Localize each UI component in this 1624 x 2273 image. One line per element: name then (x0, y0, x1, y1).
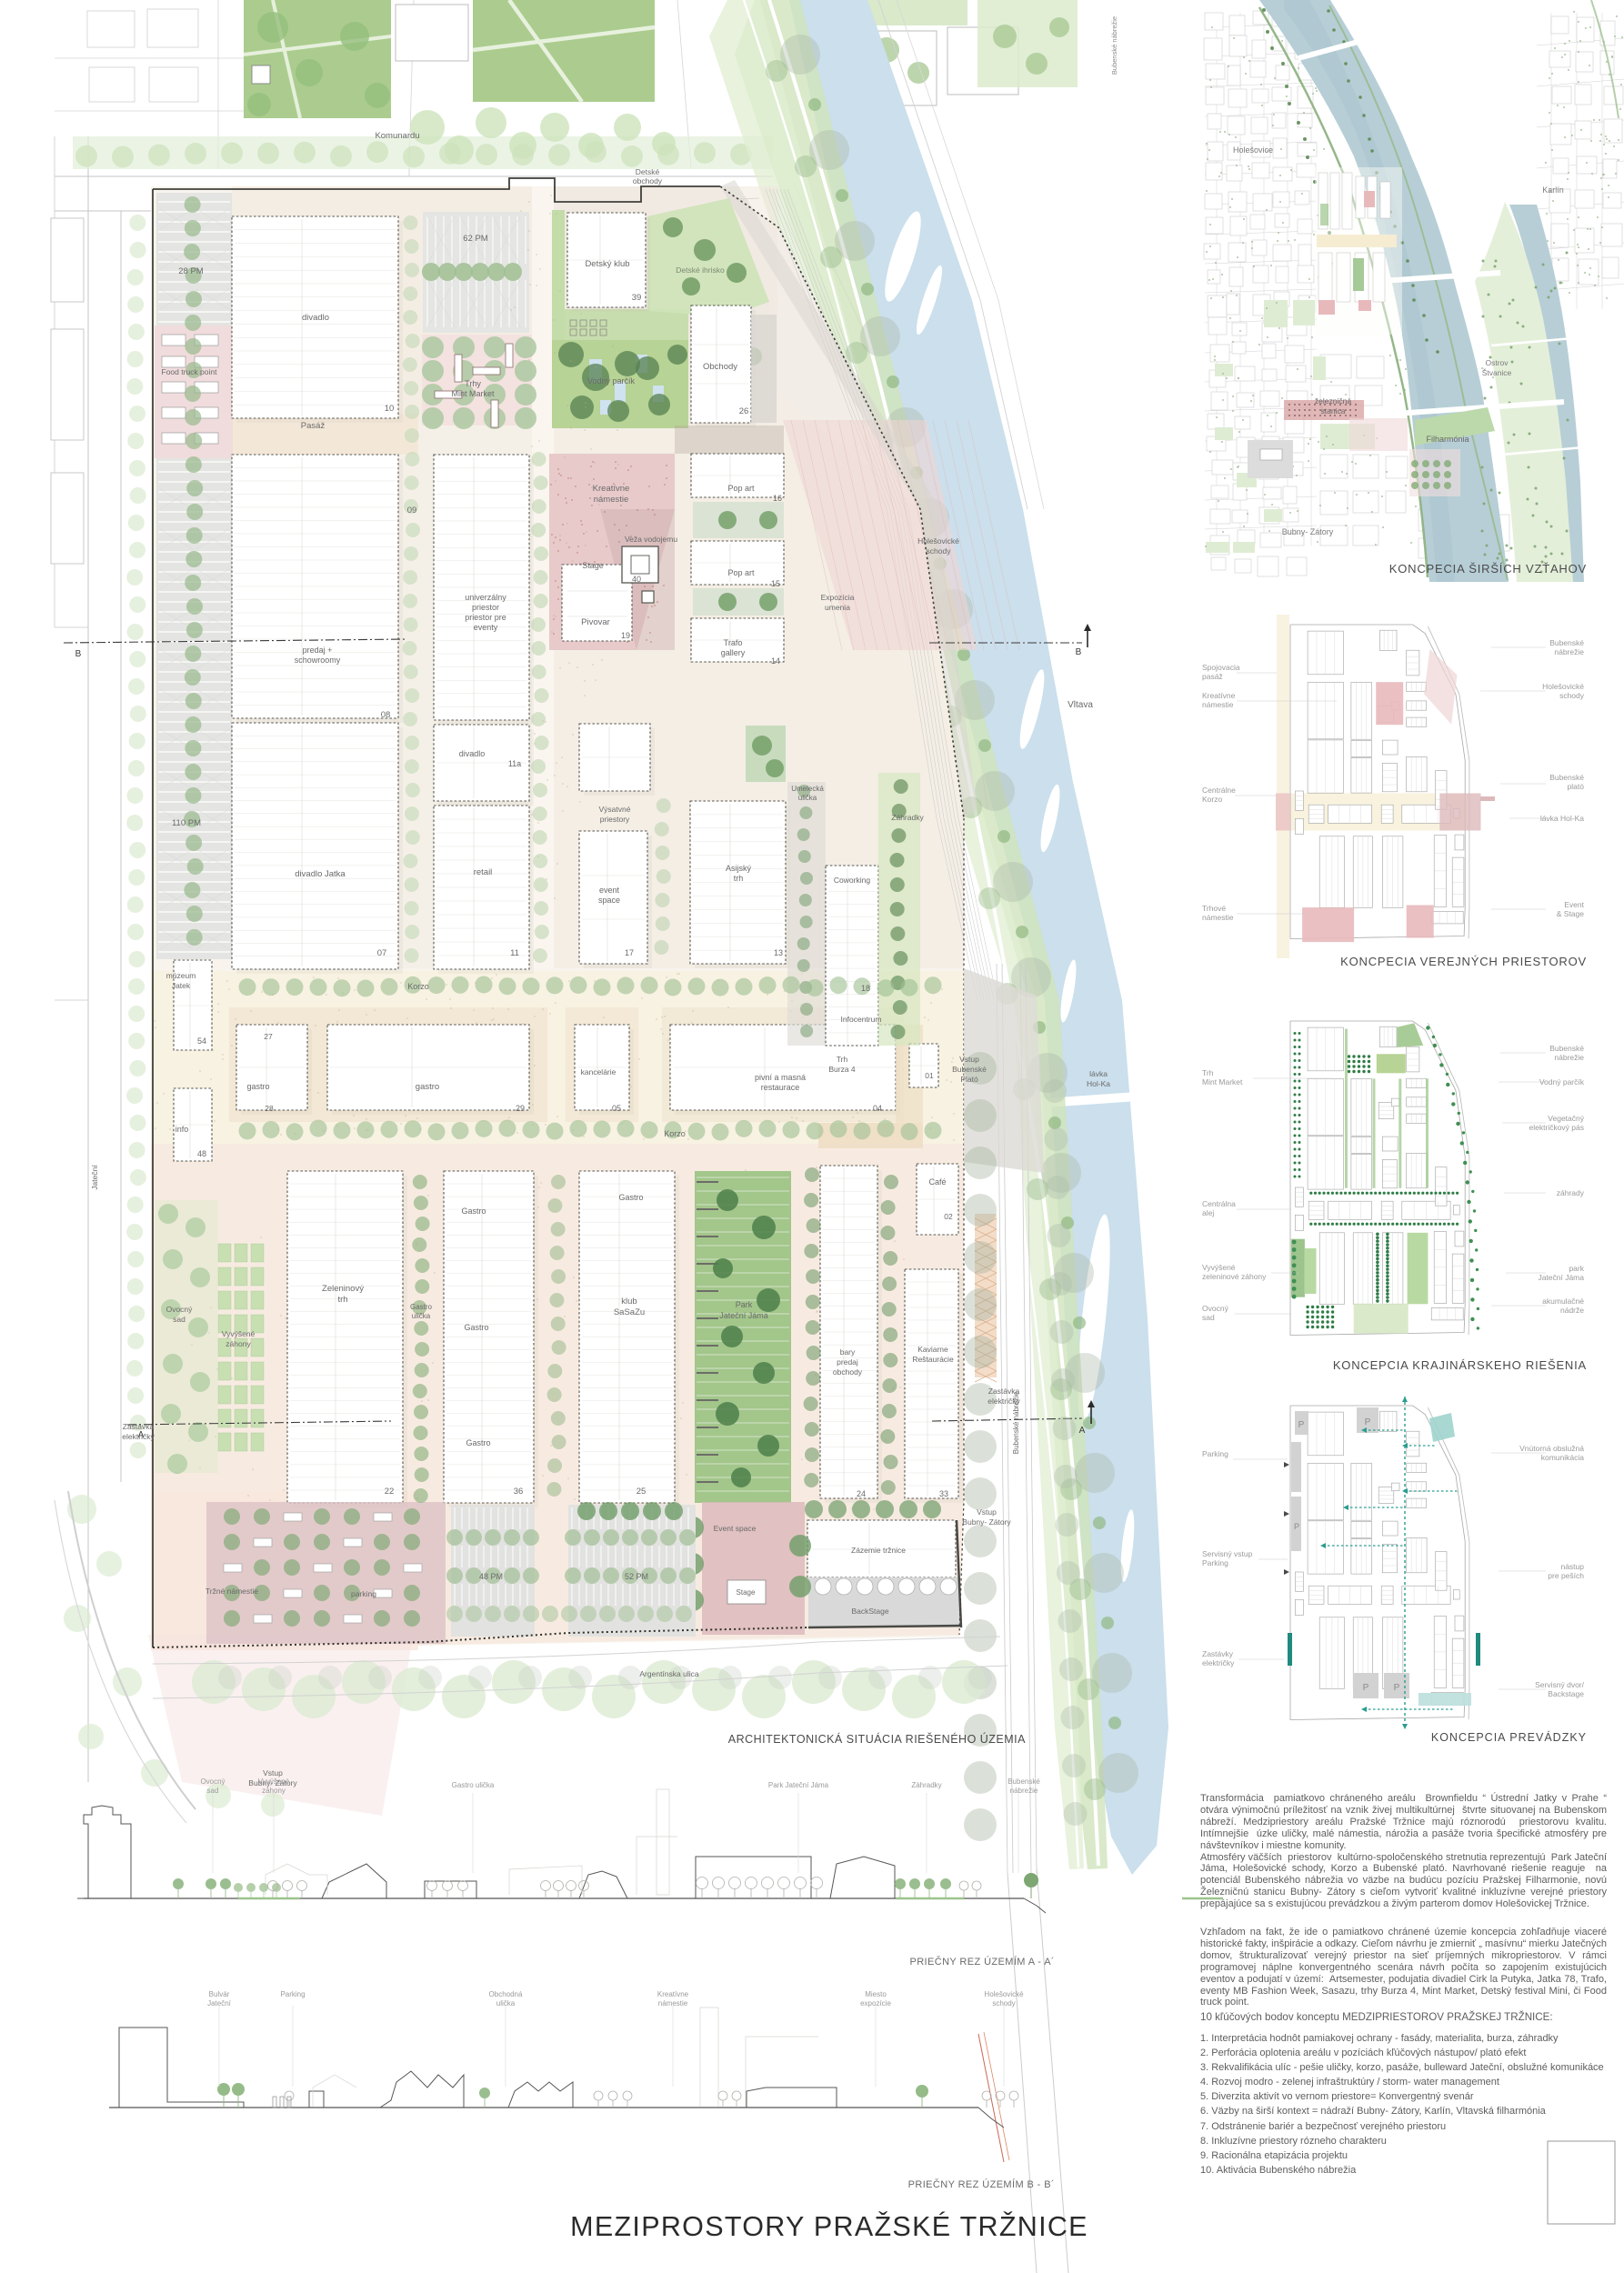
svg-text:Event: Event (1564, 900, 1584, 909)
svg-text:Korzo: Korzo (1202, 795, 1222, 804)
svg-text:02: 02 (944, 1212, 953, 1221)
svg-text:Parking: Parking (1202, 1558, 1228, 1567)
svg-text:07: 07 (377, 948, 387, 958)
svg-text:10: 10 (385, 404, 395, 414)
svg-text:priestor pre: priestor pre (465, 613, 506, 622)
svg-text:plató: plató (1568, 782, 1585, 791)
svg-text:B: B (1076, 647, 1082, 657)
svg-text:univerzálny: univerzálny (465, 593, 506, 602)
svg-text:Jateční Jáma: Jateční Jáma (1538, 1273, 1584, 1282)
svg-text:Vstup: Vstup (977, 1507, 997, 1517)
svg-text:Argentínska ulica: Argentínska ulica (639, 1669, 698, 1678)
svg-text:P: P (1365, 1417, 1371, 1427)
svg-text:nábrežie: nábrežie (1554, 647, 1584, 656)
svg-text:Bubenské: Bubenské (1007, 1777, 1040, 1786)
svg-text:Vyvýšené: Vyvýšené (1202, 1263, 1236, 1272)
svg-text:stanica: stanica (1321, 406, 1346, 416)
svg-text:KONCEPCIA KRAJINÁRSKEHO RIEŠEN: KONCEPCIA KRAJINÁRSKEHO RIEŠENIA (1333, 1358, 1587, 1372)
svg-text:Komunardu: Komunardu (375, 131, 419, 141)
svg-text:Stage: Stage (737, 1588, 756, 1597)
svg-text:11: 11 (510, 948, 519, 958)
svg-text:SaSaZu: SaSaZu (614, 1307, 645, 1317)
svg-text:Ovocný: Ovocný (1202, 1304, 1229, 1313)
svg-text:Vyvýšené: Vyvýšené (258, 1777, 290, 1786)
svg-text:námestie: námestie (594, 495, 629, 505)
svg-text:Stage: Stage (582, 561, 604, 570)
svg-text:Centrálne: Centrálne (1202, 786, 1236, 795)
svg-text:Trhy: Trhy (465, 379, 481, 388)
svg-text:ulička: ulička (412, 1312, 431, 1320)
svg-text:Pop art: Pop art (727, 484, 755, 493)
svg-text:25: 25 (637, 1487, 647, 1497)
svg-text:Kreatívne: Kreatívne (1202, 691, 1236, 700)
svg-text:obchody: obchody (833, 1367, 863, 1377)
svg-text:P: P (1363, 1683, 1369, 1693)
svg-text:Holešovické: Holešovické (1542, 682, 1584, 691)
svg-text:Plató: Plató (960, 1075, 978, 1084)
svg-text:Vodný parčík: Vodný parčík (1539, 1077, 1585, 1086)
svg-text:nábrežie: nábrežie (1010, 1787, 1038, 1795)
svg-text:15: 15 (771, 579, 780, 588)
svg-text:Pop art: Pop art (727, 568, 755, 577)
svg-text:zeleninové záhony: zeleninové záhony (1202, 1272, 1267, 1281)
svg-text:P: P (1394, 1683, 1400, 1693)
svg-text:Vnútorná obslužná: Vnútorná obslužná (1519, 1444, 1584, 1453)
svg-text:železničná: železničná (1315, 396, 1351, 406)
svg-text:záhony: záhony (262, 1787, 286, 1795)
svg-text:Kaviarne: Kaviarne (917, 1345, 948, 1354)
svg-text:Holešovické: Holešovické (984, 1990, 1024, 1998)
svg-text:záhrady: záhrady (1557, 1188, 1585, 1197)
svg-text:PRIEČNY REZ ÚZEMÍM A - A´: PRIEČNY REZ ÚZEMÍM A - A´ (909, 1956, 1055, 1968)
svg-text:Ostrov: Ostrov (1485, 358, 1509, 367)
svg-text:Vltava: Vltava (1068, 700, 1093, 710)
svg-text:lávka Hol-Ka: lávka Hol-Ka (1540, 814, 1584, 823)
svg-text:Karlín: Karlín (1542, 185, 1564, 195)
svg-text:Trhové: Trhové (1202, 904, 1226, 913)
svg-text:Tržné námestie: Tržné námestie (206, 1587, 259, 1596)
svg-text:Pivovar: Pivovar (581, 617, 610, 627)
svg-text:klub: klub (621, 1297, 637, 1307)
svg-text:divadlo: divadlo (302, 313, 329, 323)
svg-text:Parking: Parking (280, 1990, 305, 1998)
svg-text:námestie: námestie (658, 1999, 688, 2008)
svg-text:Gastro: Gastro (461, 1207, 486, 1216)
svg-text:54: 54 (197, 1036, 206, 1046)
svg-text:Burza 4: Burza 4 (828, 1065, 856, 1074)
svg-text:14: 14 (771, 656, 780, 666)
svg-text:Zastávka: Zastávka (123, 1422, 155, 1431)
svg-text:KONCPECIA ŠIRŠÍCH VZŤAHOV: KONCPECIA ŠIRŠÍCH VZŤAHOV (1389, 562, 1587, 576)
svg-text:Trh: Trh (837, 1055, 848, 1064)
svg-text:Backstage: Backstage (1548, 1689, 1584, 1698)
svg-text:Food truck point: Food truck point (162, 367, 218, 376)
svg-text:Trh: Trh (1202, 1068, 1214, 1077)
svg-text:26: 26 (739, 406, 749, 416)
svg-text:22: 22 (385, 1487, 395, 1497)
svg-text:24: 24 (857, 1489, 866, 1498)
svg-text:40: 40 (632, 575, 641, 584)
svg-text:múzeum: múzeum (166, 971, 196, 980)
svg-text:Korzo: Korzo (664, 1129, 686, 1138)
svg-text:Bubenské nábrežie: Bubenské nábrežie (1110, 16, 1118, 75)
svg-text:priestor: priestor (472, 603, 499, 612)
svg-text:Bubenské: Bubenské (1549, 1044, 1584, 1053)
svg-text:retail: retail (474, 867, 493, 877)
svg-text:Jateční: Jateční (207, 1999, 232, 2008)
svg-text:P: P (1298, 1420, 1305, 1430)
svg-text:Záhradky: Záhradky (891, 813, 924, 822)
svg-text:alej: alej (1202, 1208, 1214, 1217)
svg-text:sad: sad (173, 1315, 185, 1324)
svg-text:Trafo: Trafo (724, 638, 743, 647)
svg-text:28 PM: 28 PM (178, 266, 204, 276)
svg-text:Pasáž: Pasáž (301, 421, 326, 431)
svg-text:08: 08 (381, 710, 391, 720)
svg-text:Asijský: Asijský (726, 864, 752, 873)
svg-text:obchody: obchody (633, 176, 663, 185)
svg-text:11a: 11a (508, 759, 521, 768)
svg-text:Gastro: Gastro (410, 1303, 433, 1311)
svg-text:Servisný dvor/: Servisný dvor/ (1535, 1680, 1584, 1689)
svg-text:Detské: Detské (636, 167, 660, 176)
svg-text:Jateční Jáma: Jateční Jáma (719, 1311, 768, 1320)
svg-text:Zázemie tržnice: Zázemie tržnice (851, 1546, 906, 1555)
svg-text:Gastro: Gastro (464, 1323, 488, 1332)
svg-text:Výsatvné: Výsatvné (599, 805, 631, 814)
svg-text:Expozícia: Expozícia (821, 593, 855, 602)
svg-text:Jateční: Jateční (90, 1165, 99, 1190)
svg-text:Gastro: Gastro (466, 1438, 490, 1447)
svg-text:Bubenské: Bubenské (952, 1065, 987, 1074)
svg-text:Holešovické: Holešovické (917, 536, 959, 546)
svg-text:Bubenské nábrežie: Bubenské nábrežie (1012, 1391, 1020, 1454)
svg-text:04: 04 (873, 1104, 882, 1113)
svg-text:trh: trh (734, 874, 744, 883)
svg-text:19: 19 (621, 631, 630, 640)
svg-text:schody: schody (1559, 691, 1585, 700)
svg-text:Miesto: Miesto (865, 1990, 887, 1998)
svg-text:Korzo: Korzo (407, 982, 429, 991)
svg-text:predaj +: predaj + (303, 646, 333, 655)
svg-text:Bubny- Zátory: Bubny- Zátory (962, 1517, 1011, 1527)
svg-text:lávka: lávka (1089, 1069, 1108, 1078)
svg-text:nástup: nástup (1560, 1562, 1584, 1571)
svg-text:nábrežie: nábrežie (1554, 1053, 1584, 1062)
svg-text:umenia: umenia (825, 603, 850, 612)
svg-text:pasáž: pasáž (1202, 672, 1223, 681)
svg-text:komunikácia: komunikácia (1541, 1453, 1585, 1462)
svg-text:Hol-Ka: Hol-Ka (1087, 1079, 1110, 1088)
svg-text:Vstup: Vstup (959, 1055, 979, 1064)
svg-text:Ovocný: Ovocný (166, 1305, 194, 1314)
svg-text:18: 18 (861, 984, 870, 993)
svg-text:Vegetačný: Vegetačný (1548, 1114, 1584, 1123)
svg-text:schody: schody (992, 1999, 1015, 2008)
svg-text:gastro: gastro (246, 1082, 269, 1091)
svg-text:nádrže: nádrže (1560, 1306, 1584, 1315)
svg-text:Spojovacia: Spojovacia (1202, 663, 1240, 672)
svg-text:62 PM: 62 PM (463, 234, 488, 244)
svg-text:BackStage: BackStage (851, 1607, 888, 1616)
svg-text:priestory: priestory (600, 815, 630, 824)
svg-text:Obchodná: Obchodná (489, 1990, 523, 1998)
svg-text:Kreatívne: Kreatívne (593, 484, 630, 494)
svg-text:Detské ihrisko: Detské ihrisko (676, 265, 725, 275)
svg-text:27: 27 (264, 1032, 273, 1041)
svg-text:Vodný parčík: Vodný parčík (587, 376, 636, 386)
svg-text:Štvanice: Štvanice (1482, 368, 1512, 377)
svg-text:Gastro ulička: Gastro ulička (452, 1781, 495, 1789)
svg-text:Vstup: Vstup (263, 1768, 283, 1777)
svg-text:bary: bary (840, 1347, 856, 1357)
svg-text:Záhradky: Záhradky (911, 1781, 941, 1789)
svg-text:trh: trh (337, 1295, 347, 1305)
svg-text:Zeleninový: Zeleninový (322, 1284, 364, 1294)
svg-text:pivní a masná: pivní a masná (755, 1073, 806, 1082)
svg-text:Coworking: Coworking (834, 876, 870, 885)
svg-text:Gastro: Gastro (618, 1193, 643, 1202)
svg-text:Bubenské: Bubenské (1549, 773, 1584, 782)
svg-text:Zastávky: Zastávky (1202, 1649, 1234, 1658)
svg-text:Obchody: Obchody (703, 362, 737, 372)
svg-text:48: 48 (197, 1149, 206, 1158)
svg-text:A: A (1079, 1426, 1086, 1436)
svg-text:05: 05 (612, 1104, 621, 1113)
svg-text:restaurace: restaurace (761, 1083, 800, 1092)
svg-text:sad: sad (1202, 1313, 1215, 1322)
svg-text:pre peších: pre peších (1548, 1571, 1584, 1580)
svg-text:ARCHITEKTONICKÁ SITUÁCIA RIEŠE: ARCHITEKTONICKÁ SITUÁCIA RIEŠENÉHO ÚZEMI… (728, 1732, 1026, 1746)
svg-text:eventy: eventy (474, 623, 498, 632)
svg-text:Filharmónia: Filharmónia (1426, 435, 1469, 444)
svg-text:námestie: námestie (1202, 913, 1234, 922)
svg-text:KONCPECIA VEREJNÝCH PRIESTOROV: KONCPECIA VEREJNÝCH PRIESTOROV (1340, 955, 1587, 968)
svg-text:Ovocný: Ovocný (200, 1777, 225, 1786)
svg-text:Mint Market: Mint Market (1202, 1077, 1243, 1086)
svg-text:Park: Park (736, 1300, 753, 1309)
svg-text:električky: električky (1202, 1658, 1235, 1667)
svg-text:13: 13 (774, 948, 783, 957)
svg-text:park: park (1569, 1264, 1584, 1273)
svg-text:Detský klub: Detský klub (585, 259, 629, 269)
svg-text:Vyvýšené: Vyvýšené (222, 1329, 256, 1338)
svg-text:parking: parking (351, 1589, 376, 1598)
svg-text:39: 39 (632, 293, 642, 303)
svg-text:Holešovice: Holešovice (1233, 145, 1273, 155)
svg-text:Event space: Event space (714, 1524, 757, 1533)
svg-text:expozície: expozície (860, 1999, 891, 2008)
svg-text:Bubny- Zátory: Bubny- Zátory (1282, 527, 1334, 536)
svg-text:Jatek: Jatek (172, 981, 191, 990)
svg-text:ulička: ulička (496, 1999, 516, 2008)
svg-text:event: event (599, 886, 620, 895)
svg-text:Parking: Parking (1202, 1449, 1228, 1458)
svg-text:16: 16 (773, 494, 782, 503)
svg-text:schowroomy: schowroomy (295, 656, 341, 665)
svg-text:29: 29 (516, 1104, 525, 1113)
svg-text:Veža vodojemu: Veža vodojemu (625, 535, 677, 544)
svg-text:Reštaurácie: Reštaurácie (912, 1355, 954, 1364)
svg-text:gastro: gastro (416, 1082, 439, 1092)
svg-text:Mint Market: Mint Market (451, 389, 495, 398)
svg-text:akumulačné: akumulačné (1542, 1297, 1584, 1306)
svg-text:kancelárie: kancelárie (581, 1067, 617, 1076)
svg-text:space: space (598, 896, 620, 905)
svg-text:52 PM: 52 PM (625, 1572, 648, 1581)
svg-text:01: 01 (925, 1071, 934, 1080)
svg-text:36: 36 (514, 1487, 524, 1497)
svg-text:28: 28 (265, 1104, 274, 1113)
svg-text:33: 33 (939, 1489, 948, 1498)
svg-text:& Stage: & Stage (1557, 909, 1585, 918)
svg-text:Centrálna: Centrálna (1202, 1199, 1236, 1208)
svg-text:divadlo: divadlo (459, 749, 486, 758)
svg-text:info: info (175, 1125, 189, 1134)
svg-text:48 PM: 48 PM (479, 1572, 503, 1581)
svg-text:110 PM: 110 PM (172, 818, 201, 828)
svg-text:gallery: gallery (721, 648, 746, 657)
svg-text:MEZIPROSTORY PRAŽSKÉ TRŽNICE: MEZIPROSTORY PRAŽSKÉ TRŽNICE (570, 2210, 1088, 2242)
svg-text:električky: električky (122, 1432, 155, 1441)
svg-text:Café: Café (928, 1177, 946, 1187)
svg-text:Park Jateční Jáma: Park Jateční Jáma (768, 1781, 829, 1789)
svg-text:schody: schody (927, 546, 952, 556)
svg-text:Infocentrum: Infocentrum (841, 1015, 882, 1024)
svg-text:záhony: záhony (226, 1339, 251, 1348)
svg-text:09: 09 (407, 506, 417, 516)
svg-text:PRIEČNY REZ ÚZEMÍM B - B´: PRIEČNY REZ ÚZEMÍM B - B´ (908, 2178, 1055, 2190)
svg-text:Kreatívne: Kreatívne (657, 1990, 689, 1998)
svg-text:B: B (75, 649, 82, 659)
svg-text:P: P (1294, 1522, 1299, 1531)
svg-text:Servisný vstup: Servisný vstup (1202, 1549, 1253, 1558)
svg-text:Bubenské: Bubenské (1549, 638, 1584, 647)
svg-text:divadlo Jatka: divadlo Jatka (295, 869, 346, 879)
svg-text:ulička: ulička (798, 794, 817, 802)
svg-text:Bulvár: Bulvár (209, 1990, 230, 1998)
svg-text:predaj: predaj (837, 1357, 858, 1367)
svg-text:námestie: námestie (1202, 700, 1234, 709)
svg-text:Umelecká: Umelecká (791, 785, 824, 793)
svg-text:sad: sad (207, 1787, 219, 1795)
svg-text:KONCEPCIA PREVÁDZKY: KONCEPCIA PREVÁDZKY (1431, 1730, 1587, 1744)
svg-text:električkový pás: električkový pás (1529, 1123, 1584, 1132)
svg-text:17: 17 (625, 948, 634, 957)
